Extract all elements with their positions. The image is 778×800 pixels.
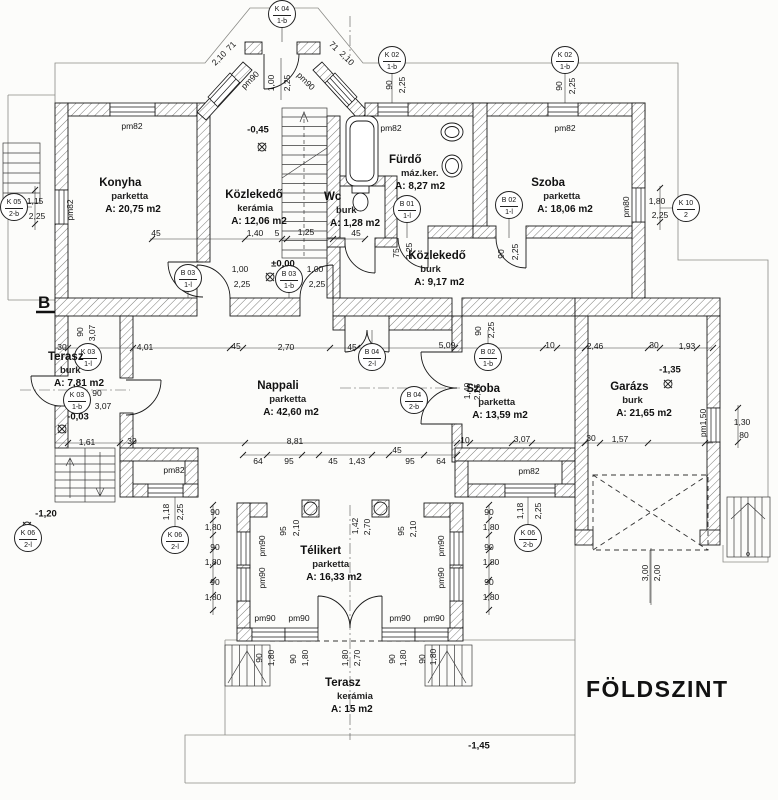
room-name: Garázs <box>610 380 672 395</box>
window-type-label: pm90 <box>288 613 309 623</box>
room-label: KözlekedőkerámiaA: 12,06 m2 <box>225 188 287 228</box>
dim-label: 1,00 <box>307 264 324 274</box>
room-finish: parketta <box>257 394 319 406</box>
dim-label: 90 <box>75 327 85 336</box>
room-area: A: 15 m2 <box>325 703 373 716</box>
dim-label: 1,80 <box>649 196 666 206</box>
dim-label: 1,43 <box>349 456 366 466</box>
room-label: KözlekedőburkA: 9,17 m2 <box>408 249 466 289</box>
drawing-title: FÖLDSZINT <box>586 676 729 703</box>
room-area: A: 8,27 m2 <box>389 180 445 193</box>
dim-label: 1,80 <box>340 650 350 667</box>
dim-label: 1,80 <box>205 522 222 532</box>
room-finish: parketta <box>466 397 528 409</box>
dim-label: 90 <box>484 507 493 517</box>
room-name: Közlekedő <box>225 188 287 203</box>
room-finish: parketta <box>531 191 593 203</box>
dim-label: 1,15 <box>27 196 44 206</box>
room-label: WcburkA: 1,28 m2 <box>324 190 380 230</box>
dim-label: 1,80 <box>428 649 438 666</box>
dim-label: 90 <box>417 654 427 663</box>
ref-tag: K 021-b <box>551 46 579 74</box>
dim-label: 45 <box>328 456 337 466</box>
room-name: Konyha <box>99 176 161 191</box>
room-finish: kerámia <box>225 203 287 215</box>
dim-label: 1,30 <box>734 417 751 427</box>
dim-label: 71 <box>224 39 238 53</box>
ref-tag: B 011-l <box>393 195 421 223</box>
room-name: Szoba <box>531 176 593 191</box>
room-label: SzobaparkettaA: 18,06 m2 <box>531 176 593 216</box>
dim-label: 2,25 <box>175 504 185 521</box>
dim-label: 1,40 <box>247 228 264 238</box>
window-type-label: pm82 <box>65 199 75 220</box>
ref-tag: B 042-b <box>400 386 428 414</box>
dim-label: 64 <box>253 456 262 466</box>
dim-label: 30 <box>649 340 658 350</box>
window-type-label: pm82 <box>163 465 184 475</box>
dim-label: 2,70 <box>352 650 362 667</box>
dim-label: 90 <box>484 577 493 587</box>
window-type-label: pm82 <box>554 123 575 133</box>
room-area: A: 7,81 m2 <box>48 377 104 390</box>
ref-tag: K 021-b <box>378 46 406 74</box>
dim-label: 10 <box>545 340 554 350</box>
room-area: A: 18,06 m2 <box>531 203 593 216</box>
ref-tag: K 041-b <box>268 0 296 28</box>
dim-label: 2,25 <box>282 75 292 92</box>
room-area: A: 13,59 m2 <box>466 409 528 422</box>
dim-label: 45 <box>347 342 356 352</box>
dim-label: 90 <box>288 654 298 663</box>
dim-label: 90 <box>384 80 394 89</box>
room-label: TélikertparkettaA: 16,33 m2 <box>300 544 362 584</box>
room-label: KonyhaparkettaA: 20,75 m2 <box>99 176 161 216</box>
dim-label: 1,18 <box>515 503 525 520</box>
dim-label: 90 <box>554 81 564 90</box>
dim-label: 90 <box>473 326 483 335</box>
dim-label: 90 <box>210 577 219 587</box>
ref-tag: B 021-b <box>474 343 502 371</box>
dim-label: 90 <box>484 542 493 552</box>
dim-label: 1,57 <box>612 434 629 444</box>
dim-label: 2,10 <box>338 49 357 68</box>
ref-tag: B 042-l <box>358 343 386 371</box>
dim-label: 2,25 <box>567 78 577 95</box>
dim-label: 1,80 <box>483 592 500 602</box>
dim-label: 1,80 <box>205 592 222 602</box>
window-type-label: pm90 <box>423 613 444 623</box>
dim-label: 5,09 <box>439 340 456 350</box>
level-label: -1,20 <box>35 509 57 520</box>
dim-label: 1,80 <box>483 557 500 567</box>
window-type-label: pm90 <box>389 613 410 623</box>
dim-label: 2,70 <box>278 342 295 352</box>
dim-label: 8,81 <box>287 436 304 446</box>
dim-label: 5 <box>275 228 280 238</box>
dim-label: 2,25 <box>486 322 496 339</box>
room-name: Terasz <box>48 350 104 365</box>
window-type-label: pm90 <box>254 613 275 623</box>
window-type-label: pm90 <box>436 567 446 588</box>
dim-label: 95 <box>278 526 288 535</box>
dim-label: 30 <box>127 436 136 446</box>
window-type-label: pm90 <box>436 535 446 556</box>
level-label: -1,35 <box>659 365 681 376</box>
window-type-label: pm1,50 <box>698 409 708 437</box>
window-type-label: pm82 <box>121 121 142 131</box>
room-name: Wc <box>324 190 380 205</box>
ref-tag: B 021-l <box>495 191 523 219</box>
dim-label: 2,25 <box>309 279 326 289</box>
dim-label: 95 <box>396 526 406 535</box>
dim-label: 90 <box>387 654 397 663</box>
dim-label: 2,25 <box>533 503 543 520</box>
room-name: Fürdő <box>389 153 445 168</box>
dim-label: 3,00 <box>640 565 650 582</box>
window-type-label: pm82 <box>380 123 401 133</box>
room-label: TeraszkerámiaA: 15 m2 <box>325 676 373 716</box>
dim-label: 90 <box>254 653 264 662</box>
room-name: Terasz <box>325 676 373 691</box>
ref-tag: K 062-b <box>514 524 542 552</box>
dim-label: 2,25 <box>397 77 407 94</box>
room-area: A: 1,28 m2 <box>324 217 380 230</box>
dim-label: 90 <box>210 542 219 552</box>
room-finish: burk <box>408 264 466 276</box>
dim-label: 45 <box>392 445 401 455</box>
level-label: -1,45 <box>468 741 490 752</box>
dim-label: 1,61 <box>79 437 96 447</box>
dim-label: 75 <box>391 248 401 257</box>
dim-label: 90 <box>496 249 506 258</box>
room-name: Szoba <box>466 382 528 397</box>
ref-tag: K 102 <box>672 194 700 222</box>
dim-label: 1,80 <box>266 650 276 667</box>
dim-label: 4,01 <box>137 342 154 352</box>
room-name: Télikert <box>300 544 362 559</box>
room-label: GarázsburkA: 21,65 m2 <box>610 380 672 420</box>
level-label: ±0,00 <box>271 259 295 270</box>
dim-label: 2,00 <box>652 565 662 582</box>
room-area: A: 16,33 m2 <box>300 571 362 584</box>
window-type-label: pm90 <box>239 69 261 91</box>
room-label: SzobaparkettaA: 13,59 m2 <box>466 382 528 422</box>
dim-label: 2,10 <box>210 49 229 68</box>
dim-label: 2,25 <box>29 211 46 221</box>
dim-label: 45 <box>231 341 240 351</box>
room-label: NappaliparkettaA: 42,60 m2 <box>257 379 319 419</box>
window-type-label: pm82 <box>518 466 539 476</box>
dim-label: 2,70 <box>362 519 372 536</box>
window-type-label: pm90 <box>295 70 317 92</box>
room-name: Közlekedő <box>408 249 466 264</box>
dim-label: 2,10 <box>408 521 418 538</box>
dim-label: 3,07 <box>514 434 531 444</box>
dim-label: 1,93 <box>679 341 696 351</box>
dim-label: 2,25 <box>234 279 251 289</box>
dim-label: 90 <box>210 507 219 517</box>
dim-label: 1,00 <box>266 75 276 92</box>
ref-tag: K 052-b <box>0 193 28 221</box>
room-finish: parketta <box>300 559 362 571</box>
dim-label: 95 <box>284 456 293 466</box>
dim-label: 95 <box>405 456 414 466</box>
dim-label: 71 <box>327 39 341 53</box>
dim-label: 1,80 <box>300 650 310 667</box>
dim-label: 2,25 <box>510 244 520 261</box>
dim-label: 1,80 <box>483 522 500 532</box>
room-label: Fürdőmáz.ker.A: 8,27 m2 <box>389 153 445 193</box>
room-area: A: 21,65 m2 <box>610 407 672 420</box>
dim-label: 1,42 <box>350 518 360 535</box>
room-finish: burk <box>610 395 672 407</box>
dim-label: 1,18 <box>161 504 171 521</box>
dim-label: 2,46 <box>587 341 604 351</box>
window-type-label: pm90 <box>257 535 267 556</box>
window-type-label: pm80 <box>621 196 631 217</box>
room-finish: burk <box>324 205 380 217</box>
ref-tag: K 062-l <box>14 524 42 552</box>
room-label: TeraszburkA: 7,81 m2 <box>48 350 104 390</box>
dim-label: 1,80 <box>205 557 222 567</box>
dim-label: 1,80 <box>398 650 408 667</box>
room-finish: parketta <box>99 191 161 203</box>
room-area: A: 20,75 m2 <box>99 203 161 216</box>
room-name: Nappali <box>257 379 319 394</box>
dim-label: 3,07 <box>87 325 97 342</box>
floor-plan-page: 1,002,25712,10712,10pm90pm90902,25pm8290… <box>0 0 778 800</box>
section-marker-label: B <box>38 293 50 313</box>
dim-label: 80 <box>739 430 748 440</box>
room-finish: máz.ker. <box>389 168 445 180</box>
dim-label: 10 <box>460 435 469 445</box>
room-finish: kerámia <box>325 691 373 703</box>
level-label: -0,45 <box>247 125 269 136</box>
dim-label: 3,07 <box>95 401 112 411</box>
ref-tag: B 031-l <box>174 264 202 292</box>
ref-tag: K 062-l <box>161 526 189 554</box>
dim-label: 64 <box>436 456 445 466</box>
dim-label: 30 <box>586 433 595 443</box>
room-area: A: 9,17 m2 <box>408 276 466 289</box>
dim-label: 1,25 <box>298 227 315 237</box>
dim-label: 1,00 <box>232 264 249 274</box>
room-area: A: 12,06 m2 <box>225 215 287 228</box>
dim-label: 45 <box>151 228 160 238</box>
window-type-label: pm90 <box>257 567 267 588</box>
room-area: A: 42,60 m2 <box>257 406 319 419</box>
room-finish: burk <box>48 365 104 377</box>
dim-label: 2,25 <box>652 210 669 220</box>
dim-label: 2,10 <box>291 520 301 537</box>
level-label: -0,03 <box>67 412 89 423</box>
